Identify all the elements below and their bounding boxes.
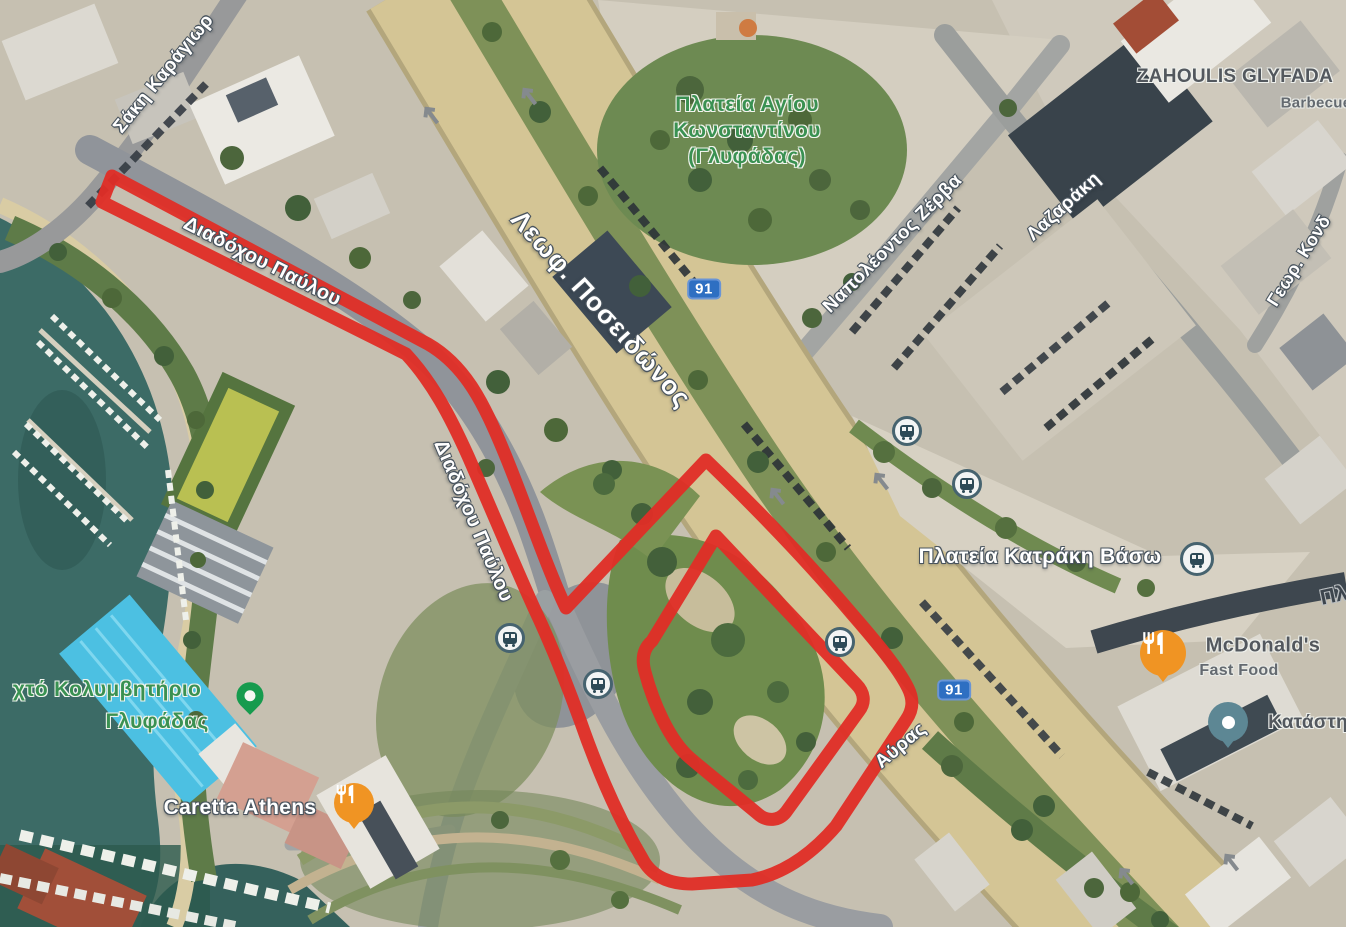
bus-stop-icon[interactable] — [825, 627, 855, 657]
poi-label-kolymvitirio-line1[interactable]: χτό Κολυμβητήριο — [13, 678, 201, 702]
bus-stop-icon[interactable] — [952, 469, 982, 499]
bus-stop-icon[interactable] — [495, 623, 525, 653]
bus-glyph — [1190, 553, 1204, 565]
bus-stop-icon[interactable] — [892, 416, 922, 446]
bus-glyph — [591, 678, 605, 690]
area-label-line: Κωνσταντίνου — [673, 118, 820, 144]
poi-label-katastima[interactable]: Κατάστη — [1268, 712, 1346, 734]
store-icon[interactable] — [1208, 702, 1248, 742]
bus-stop-icon[interactable] — [1180, 542, 1214, 576]
area-label-line: (Γλυφάδας) — [673, 144, 820, 170]
bus-glyph — [960, 478, 974, 490]
bus-glyph — [900, 425, 914, 437]
fork-knife-glyph — [1140, 630, 1166, 656]
bus-glyph — [833, 636, 847, 648]
poi-label-kolymvitirio-line2[interactable]: Γλυφάδας — [105, 710, 208, 734]
poi-label-zahoulis-subtitle: Barbecue — [1281, 95, 1346, 112]
area-label-plateia-katraki[interactable]: Πλατεία Κατράκη Βάσω — [919, 545, 1162, 569]
annotation-outline-inner — [643, 536, 863, 819]
restaurant-icon[interactable] — [334, 783, 374, 823]
store-dot-glyph — [1222, 716, 1235, 729]
bus-stop-icon[interactable] — [583, 669, 613, 699]
poi-label-caretta-athens[interactable]: Caretta Athens — [164, 796, 317, 820]
restaurant-icon[interactable] — [1140, 630, 1186, 676]
route-badge-91: 91 — [687, 279, 721, 300]
area-label-line: Πλατεία Αγίου — [673, 92, 820, 118]
satellite-map[interactable]: Σάκη Καράγιωρ Διαδόχου Παύλου Διαδόχου Π… — [0, 0, 1346, 927]
pin-hole — [242, 688, 258, 704]
annotation-outline-outer — [102, 176, 912, 884]
route-badge-91: 91 — [937, 680, 971, 701]
road-label-pl-fragment: Πλ — [1318, 581, 1346, 610]
poi-label-mcdonalds[interactable]: McDonald's — [1206, 635, 1320, 658]
fork-knife-glyph — [334, 783, 356, 805]
area-label-plateia-agiou-konstantinou[interactable]: Πλατεία Αγίου Κωνσταντίνου (Γλυφάδας) — [673, 92, 820, 170]
poi-label-mcdonalds-subtitle: Fast Food — [1199, 662, 1278, 680]
bus-glyph — [503, 632, 517, 644]
poi-label-zahoulis[interactable]: ZAHOULIS GLYFADA — [1137, 66, 1333, 88]
